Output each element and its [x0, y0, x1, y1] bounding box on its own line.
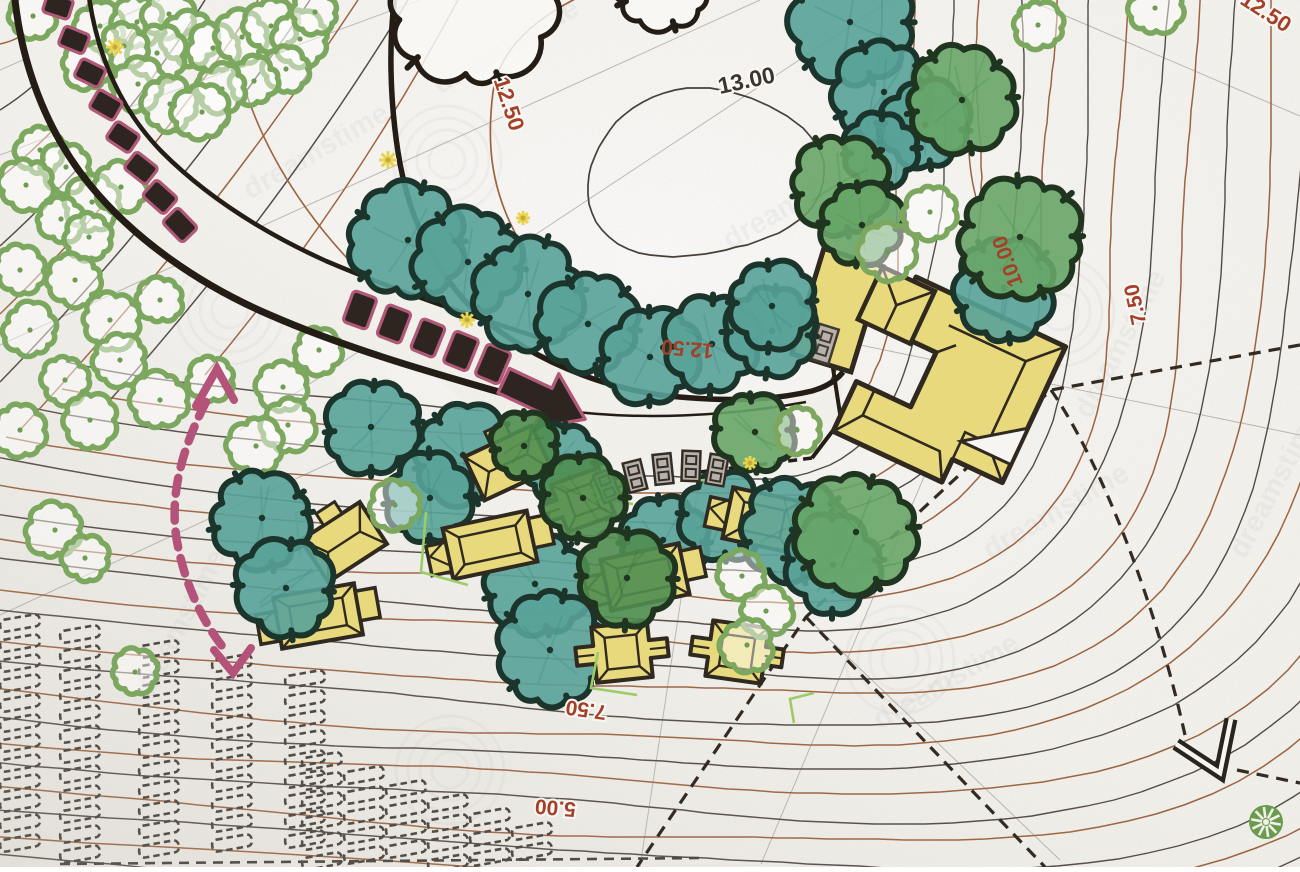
svg-text:12.50: 12.50 [660, 335, 714, 362]
svg-text:5.00: 5.00 [534, 794, 577, 820]
